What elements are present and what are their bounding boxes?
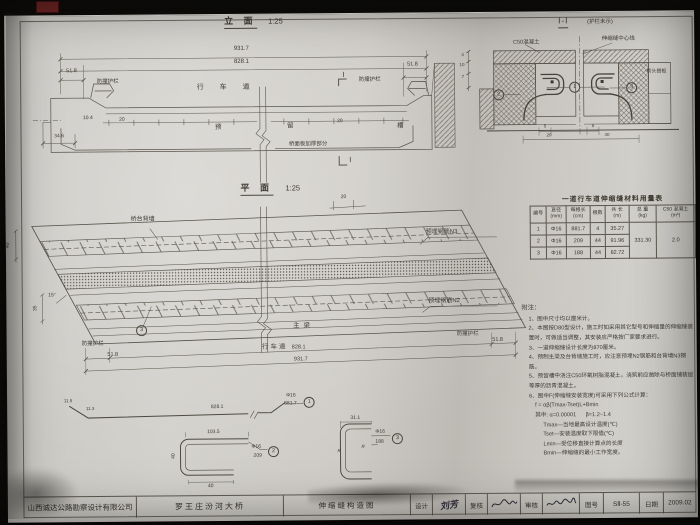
drawing-title: 伸缩缝构造图 bbox=[284, 495, 411, 517]
section-dim-c: 7 bbox=[462, 75, 465, 80]
plan-dim-35: 35 bbox=[33, 305, 39, 311]
callout-3-section: 3 bbox=[626, 82, 637, 93]
cell: 188 bbox=[566, 247, 590, 259]
dim-inner-elev: 828.1 bbox=[234, 59, 249, 66]
date-value: 2009.02 bbox=[664, 492, 696, 513]
bar1-dim-113: 11.3 bbox=[86, 407, 94, 412]
cell: 4 bbox=[590, 222, 605, 234]
bar3-radius-1: R bbox=[337, 449, 340, 454]
approach-slab-label: 桥头搭板 bbox=[647, 70, 667, 76]
bar2-callout: 2 bbox=[268, 446, 279, 457]
note-item: 2、本图按D80型设计，施工时如采用其它型号和伸缩量的伸缩缝装置时，可做适当调整… bbox=[522, 324, 697, 345]
bar2-dim-bottom: 40 bbox=[208, 484, 214, 490]
callout-1-section: 1 bbox=[569, 82, 580, 93]
dim-346: 34.6 bbox=[54, 134, 64, 140]
plan-dim-inner: 828.1 bbox=[292, 344, 306, 350]
company-name: 山西诚达公路勘察设计有限公司 bbox=[24, 497, 137, 519]
section-dim-5a: 5 bbox=[544, 124, 547, 129]
girder-label: 主梁 bbox=[293, 322, 314, 329]
callout-3-plan: 3 bbox=[136, 325, 147, 336]
centerline-label: 伸缩缝中心线 bbox=[602, 36, 635, 42]
design-signature: 刘芳 bbox=[433, 494, 466, 515]
elevation-scale: 1:25 bbox=[268, 18, 283, 26]
section-dim-a: 4 bbox=[461, 53, 464, 58]
slot-label-2: 留 bbox=[287, 122, 294, 129]
note-item: 5、预留槽中浇注C50环氧树脂混凝土，浇筑前应凿除与桥面铺装层等厚的沥青混凝土。 bbox=[522, 372, 697, 393]
col-header: 每根长(cm) bbox=[566, 206, 590, 223]
c50-label: C50混凝土 bbox=[513, 40, 540, 46]
cell: 44 bbox=[590, 234, 605, 246]
bar1-dim-115: 11.5 bbox=[64, 399, 72, 404]
cell: 3 bbox=[530, 247, 546, 259]
review-label: 审核 bbox=[521, 493, 543, 514]
cell: 44 bbox=[590, 246, 605, 258]
cell: Φ16 bbox=[546, 235, 566, 247]
plan-dim-right: 51.8 bbox=[492, 337, 503, 343]
plan-scale: 1:25 bbox=[285, 184, 300, 192]
roadway-label-elev: 行 车 道 bbox=[197, 84, 257, 92]
bar3-callout: 3 bbox=[392, 433, 403, 444]
section-subtitle: (护栏未示) bbox=[587, 19, 613, 25]
guardrail-label-left: 防撞护栏 bbox=[97, 79, 119, 85]
material-table-title: 一道行车道伸缩缝材料用量表 bbox=[529, 192, 695, 203]
design-label: 设计 bbox=[411, 494, 433, 515]
drawing-no-value: SⅡ-55 bbox=[604, 493, 640, 514]
bar2-spec: Φ16 bbox=[251, 445, 261, 451]
section-dim-5b: 5 bbox=[592, 124, 595, 129]
plan-dim-40: 40 bbox=[6, 243, 12, 249]
rebar-n2-label: 预埋钢筋N2 bbox=[428, 298, 460, 305]
dim-right-elev: 51.8 bbox=[407, 61, 418, 67]
plan-title: 平 面 bbox=[240, 184, 273, 196]
dim-20-left: 20 bbox=[119, 118, 125, 124]
bar1-spec: Φ16 bbox=[286, 393, 296, 399]
guardrail-plan-left: 防撞护栏 bbox=[82, 341, 104, 347]
check-label: 复核 bbox=[466, 494, 488, 515]
cell: 82.72 bbox=[605, 246, 629, 258]
dim-104: 10.4 bbox=[83, 116, 93, 122]
deck-thicken-note: 桥面板加厚部分 bbox=[289, 141, 328, 147]
photo-frame: 立 面 1:25 931.7 828.1 51.8 51.8 防撞护栏 防撞护栏… bbox=[0, 0, 700, 525]
plan-dim-total: 931.7 bbox=[294, 356, 308, 362]
plan-dim-20: 20 bbox=[341, 195, 347, 201]
section-dim-40: 40 bbox=[605, 133, 610, 138]
cell-concrete: 2.0 bbox=[656, 222, 695, 258]
project-name: 罗王庄汾河大桥 bbox=[137, 496, 284, 518]
cell: 881.7 bbox=[566, 223, 590, 235]
notes-block: 附注： 1、图中尺寸均以厘米计。 2、本图按D80型设计，施工时如采用其它型号和… bbox=[521, 302, 697, 459]
elevation-title: 立 面 bbox=[224, 17, 257, 29]
cell-total-weight: 331.30 bbox=[629, 222, 656, 258]
cell: 2 bbox=[530, 235, 546, 247]
col-header: 共 长(m) bbox=[605, 205, 629, 222]
table-row: 1 Φ16 881.7 4 35.27 331.30 2.0 bbox=[530, 222, 695, 235]
cell: Φ16 bbox=[546, 223, 566, 235]
guardrail-label-right: 防撞护栏 bbox=[359, 77, 381, 83]
cell: Φ16 bbox=[546, 247, 566, 259]
skew-angle-label: 15° bbox=[48, 293, 56, 299]
col-header: 总 重(kg) bbox=[629, 205, 656, 222]
cell: 1 bbox=[530, 223, 546, 235]
material-table-block: 一道行车道伸缩缝材料用量表 编号 直径(mm) 每根长(cm) 根数 共 长(m… bbox=[529, 192, 696, 259]
cell: 91.96 bbox=[605, 234, 629, 246]
col-header: 根数 bbox=[590, 205, 605, 222]
section-mark-bottom: Ⅰ bbox=[349, 157, 351, 165]
bar1-length: 828.1 bbox=[211, 405, 224, 411]
callout-2-section: 2 bbox=[493, 89, 504, 100]
bar2-dim-top: 103.5 bbox=[207, 430, 220, 436]
bar2-total: 209 bbox=[254, 454, 262, 460]
col-header: 编号 bbox=[530, 206, 546, 223]
formula-def: Bmin—伸缩缝的最小工作宽度。 bbox=[522, 449, 697, 460]
bar1-total: 881.7 bbox=[284, 401, 297, 407]
bar3-radius-2: R bbox=[361, 445, 364, 450]
backwall-label: 桥台背墙 bbox=[131, 217, 155, 224]
cell: 209 bbox=[566, 235, 590, 247]
col-header: C50 混凝土(m³) bbox=[656, 205, 695, 222]
check-signature-scribble bbox=[488, 494, 521, 515]
section-title: Ⅰ-Ⅰ bbox=[558, 17, 568, 28]
note-item: 4、预制主梁及台背墙施工时，应注意预埋N2钢筋和台背墙N3钢筋。 bbox=[522, 353, 697, 374]
date-label: 日期 bbox=[640, 493, 664, 514]
section-dim-20: 20 bbox=[547, 133, 552, 138]
dim-left-elev: 51.8 bbox=[66, 68, 77, 74]
slot-label-3: 槽 bbox=[397, 123, 404, 130]
dim-20-right: 20 bbox=[337, 119, 343, 125]
rebar-details bbox=[69, 402, 391, 486]
bar3-spec: Φ16 bbox=[375, 430, 385, 436]
dim-total-elev: 931.7 bbox=[234, 46, 249, 53]
col-header: 直径(mm) bbox=[546, 206, 566, 223]
section-mark-top: Ⅰ bbox=[343, 72, 345, 80]
plan-dim-left: 51.8 bbox=[107, 352, 118, 358]
rebar-n3-label: 预埋钢筋N3 bbox=[426, 229, 458, 236]
review-signature-scribble bbox=[543, 493, 580, 514]
bar3-dim-top: 31.1 bbox=[350, 416, 360, 422]
bar1-callout: 1 bbox=[304, 397, 315, 408]
red-stamp bbox=[36, 1, 59, 13]
cell: 35.27 bbox=[605, 222, 629, 234]
bar2-dim-left: 40 bbox=[172, 453, 178, 459]
material-table: 编号 直径(mm) 每根长(cm) 根数 共 长(m) 总 重(kg) C50 … bbox=[530, 204, 696, 259]
elevation-view bbox=[32, 50, 455, 184]
drawing-no-label: 图号 bbox=[580, 493, 604, 514]
roadway-label-plan: 行车道 bbox=[262, 343, 288, 350]
bar3-total: 188 bbox=[375, 440, 383, 446]
section-dim-b: 10 bbox=[459, 63, 464, 68]
guardrail-plan-right: 防撞护栏 bbox=[457, 331, 479, 337]
slot-label-1: 预 bbox=[215, 124, 222, 131]
drawing-sheet: 立 面 1:25 931.7 828.1 51.8 51.8 防撞护栏 防撞护栏… bbox=[0, 0, 700, 525]
notes-title: 附注： bbox=[521, 302, 696, 314]
